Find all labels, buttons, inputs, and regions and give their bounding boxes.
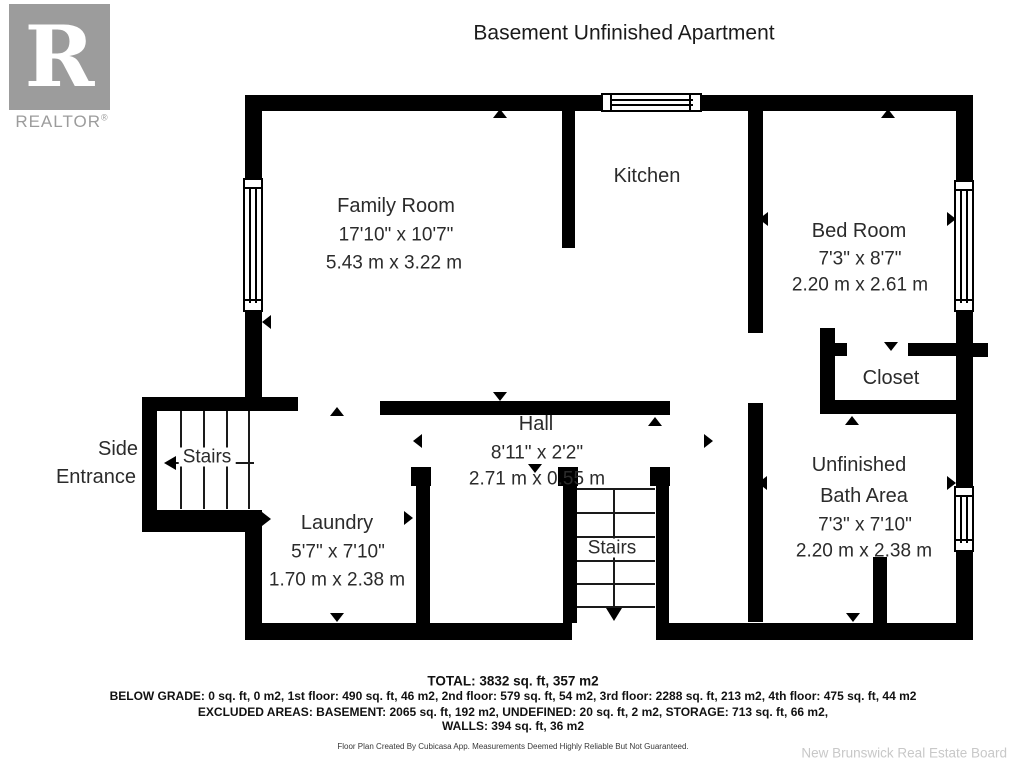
wall — [835, 343, 847, 356]
footer-disclaimer: Floor Plan Created By Cubicasa App. Meas… — [337, 743, 688, 751]
window-icon — [954, 486, 974, 552]
stair-direction-arrow-icon — [164, 456, 176, 470]
door-arrow-icon — [413, 434, 422, 448]
room-dim-ft-family: 17'10" x 10'7" — [339, 226, 454, 245]
wall — [142, 510, 262, 532]
wall — [245, 95, 603, 111]
footer-walls: WALLS: 394 sq. ft, 36 m2 — [442, 720, 584, 732]
room-label-family: Family Room — [337, 196, 455, 216]
room-dim-ft-bedroom: 7'3" x 8'7" — [818, 250, 901, 269]
wall — [245, 623, 572, 640]
window-icon — [243, 178, 263, 312]
stair-tread — [577, 583, 655, 585]
wall — [656, 623, 973, 640]
wall — [245, 510, 262, 640]
wall-bath-stub — [873, 557, 887, 623]
footer-below-grade: BELOW GRADE: 0 sq. ft, 0 m2, 1st floor: … — [110, 690, 917, 702]
stair-direction-arrow-icon — [606, 608, 622, 621]
board-watermark: New Brunswick Real Estate Board — [801, 746, 1007, 761]
wall — [956, 95, 973, 181]
realtor-logo-label: REALTOR® — [5, 112, 119, 132]
window-icon — [601, 93, 702, 112]
page-title: Basement Unfinished Apartment — [473, 23, 774, 44]
room-label-hall: Hall — [519, 414, 553, 434]
room-label-bath-line2: Bath Area — [820, 486, 908, 506]
wall — [411, 467, 431, 486]
door-arrow-icon — [648, 417, 662, 426]
door-arrow-icon — [704, 434, 713, 448]
room-dim-m-bath: 2.20 m x 2.38 m — [796, 542, 932, 561]
room-label-closet: Closet — [863, 368, 920, 388]
door-arrow-icon — [759, 212, 768, 226]
door-arrow-icon — [758, 476, 767, 490]
stair-tread — [577, 512, 655, 514]
room-label-bath-line1: Unfinished — [812, 455, 907, 475]
wall — [956, 311, 973, 487]
door-arrow-icon — [404, 511, 413, 525]
wall — [701, 95, 973, 111]
door-arrow-icon — [947, 476, 956, 490]
door-arrow-icon — [947, 212, 956, 226]
door-arrow-icon — [881, 109, 895, 118]
door-arrow-icon — [330, 407, 344, 416]
footer-total: TOTAL: 3832 sq. ft, 357 m2 — [427, 674, 598, 688]
door-arrow-icon — [493, 109, 507, 118]
stair-tread — [577, 560, 655, 562]
room-label-bedroom: Bed Room — [812, 221, 907, 241]
stair-tread — [248, 411, 250, 509]
registered-mark: ® — [101, 112, 109, 122]
room-dim-m-hall: 2.71 m x 0.55 m — [469, 470, 605, 489]
label-stairs-center: Stairs — [584, 539, 641, 558]
realtor-logo-letter: R — [25, 15, 95, 99]
room-dim-ft-hall: 8'11" x 2'2" — [491, 444, 583, 463]
room-dim-m-family: 5.43 m x 3.22 m — [326, 254, 462, 273]
room-dim-m-laundry: 1.70 m x 2.38 m — [269, 571, 405, 590]
wall-stairs-left — [563, 467, 577, 623]
room-dim-ft-bath: 7'3" x 7'10" — [818, 516, 912, 535]
label-side-entrance-line2: Entrance — [56, 467, 136, 487]
door-arrow-icon — [748, 318, 757, 332]
door-arrow-icon — [493, 392, 507, 401]
room-dim-ft-laundry: 5'7" x 7'10" — [291, 543, 385, 562]
wall-closet-top — [908, 343, 958, 356]
wall-closet-left — [820, 328, 835, 413]
door-arrow-icon — [846, 613, 860, 622]
door-arrow-icon — [330, 613, 344, 622]
door-arrow-icon — [262, 512, 271, 526]
room-label-laundry: Laundry — [301, 513, 373, 533]
wall-stairs-right — [656, 467, 669, 639]
door-arrow-icon — [262, 315, 271, 329]
floor-plan-page: R REALTOR® Basement Unfinished Apartment — [0, 0, 1024, 768]
wall-laundry-right — [416, 467, 430, 623]
wall — [973, 343, 988, 357]
wall — [245, 311, 262, 401]
label-stairs-left: Stairs — [179, 448, 236, 467]
door-arrow-icon — [845, 416, 859, 425]
realtor-logo-icon: R — [9, 4, 110, 110]
wall — [142, 397, 298, 411]
wall-bath-top — [820, 400, 958, 414]
wall — [650, 467, 670, 486]
window-icon — [954, 180, 974, 312]
room-label-kitchen: Kitchen — [614, 166, 681, 186]
footer-excluded-areas: EXCLUDED AREAS: BASEMENT: 2065 sq. ft, 1… — [198, 706, 828, 718]
room-dim-m-bedroom: 2.20 m x 2.61 m — [792, 276, 928, 295]
wall — [245, 95, 262, 179]
label-side-entrance-line1: Side — [98, 439, 138, 459]
wall-kitchen-family — [562, 110, 575, 248]
door-arrow-icon — [884, 342, 898, 351]
wall-corridor — [748, 403, 763, 622]
